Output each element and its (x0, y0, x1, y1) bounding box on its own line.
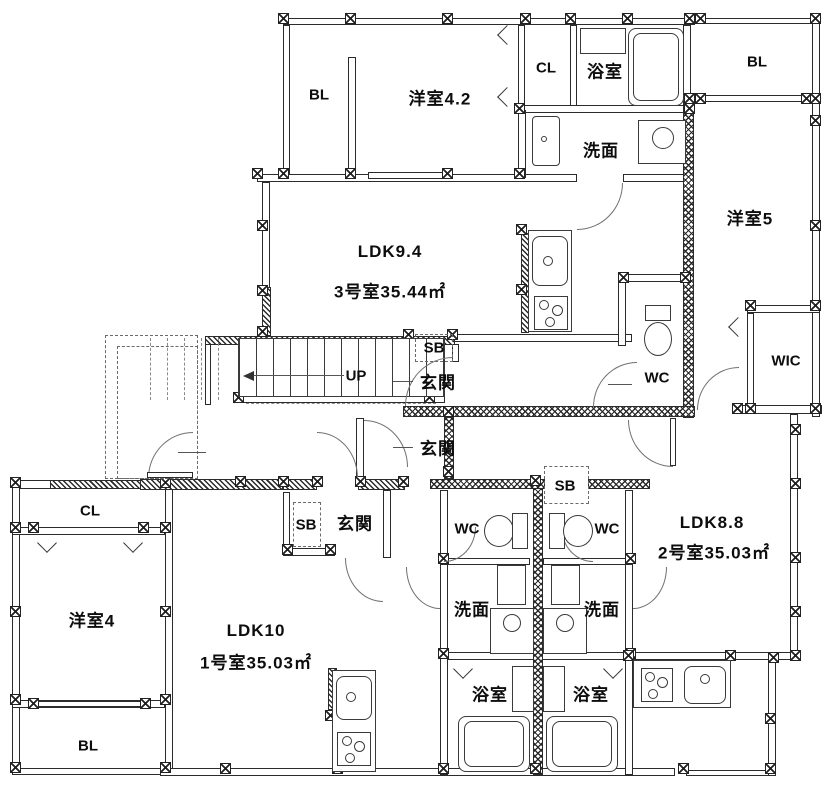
tick (178, 452, 206, 453)
column-marker (810, 13, 821, 24)
column-marker (695, 93, 706, 104)
wall (695, 18, 820, 24)
room-label-cl-west: CL (80, 503, 100, 520)
door-arc (364, 420, 408, 467)
wash-bowl (503, 614, 521, 632)
room-label-wc-unit3: WC (645, 370, 670, 387)
column-marker (10, 694, 21, 705)
column-marker (345, 13, 356, 24)
burner (657, 677, 668, 688)
toilet-bowl (484, 515, 514, 547)
up-arrow-head (243, 371, 254, 381)
room-label-unit1-area: 1号室35.03㎡ (200, 649, 312, 674)
room-label-sb-unit1: SB (296, 517, 317, 534)
window (686, 770, 772, 776)
column-marker (235, 476, 246, 487)
column-marker (257, 285, 268, 296)
up-arrow-line (252, 375, 344, 376)
column-marker (790, 478, 801, 489)
column-marker (516, 284, 527, 295)
bathtub-inner (464, 721, 524, 767)
column-marker (10, 477, 21, 488)
room-label-yoshitsu5: 洋室5 (727, 205, 773, 230)
room-label-ldk10: LDK10 (227, 621, 286, 641)
room-label-bl-northeast: BL (747, 54, 767, 71)
column-marker (565, 13, 576, 24)
column-marker (768, 652, 779, 663)
balcony-rail (30, 701, 151, 707)
column-marker (443, 406, 454, 417)
column-marker (438, 648, 449, 659)
stairs-up-label: UP (346, 368, 367, 385)
wash-bowl (652, 127, 674, 149)
room-label-wc-unit1: WC (455, 521, 480, 538)
column-marker (442, 13, 453, 24)
window (368, 172, 450, 179)
faucet (700, 674, 710, 684)
room-label-wic: WIC (771, 353, 800, 370)
room-label-bl-north: BL (309, 87, 329, 104)
column-marker (438, 763, 449, 774)
column-marker (520, 13, 531, 24)
room-label-senmen-north: 洗面 (583, 137, 619, 162)
door-arc (577, 183, 623, 230)
wash-bowl (556, 614, 574, 632)
column-marker (252, 168, 263, 179)
wall (518, 25, 525, 110)
column-marker (680, 272, 691, 283)
column-marker (810, 403, 821, 414)
folding-door-mark (37, 533, 57, 553)
tick (608, 384, 632, 385)
room-label-yokushitsu-unit2: 浴室 (573, 681, 609, 706)
column-marker (10, 606, 21, 617)
column-marker (695, 13, 706, 24)
toilet-tank (512, 513, 528, 549)
column-marker (345, 168, 356, 179)
column-marker (618, 272, 629, 283)
room-label-unit2-area: 2号室35.03㎡ (658, 539, 770, 564)
folding-door-mark (497, 25, 517, 45)
column-marker (140, 698, 151, 709)
room-label-senmen-unit2: 洗面 (584, 596, 620, 621)
column-marker (28, 698, 39, 709)
room-label-bl-southwest: BL (78, 738, 98, 755)
column-marker (325, 544, 336, 555)
kitchen-sink (684, 666, 726, 704)
toilet-bowl (563, 515, 593, 547)
column-marker (790, 606, 801, 617)
column-marker (625, 553, 636, 564)
party-wall (430, 479, 545, 489)
wall (618, 282, 626, 346)
room-label-yokushitsu-unit1: 浴室 (472, 681, 508, 706)
burner (552, 305, 563, 316)
column-marker (516, 224, 527, 235)
column-marker (530, 475, 541, 486)
door-arc (628, 420, 673, 467)
room-label-unit3-area: 3号室35.44㎡ (334, 278, 446, 303)
folding-door-mark (603, 659, 623, 679)
wall (570, 25, 577, 110)
column-marker (257, 220, 268, 231)
room-label-ldk88: LDK8.8 (680, 513, 745, 533)
bath-counter (543, 666, 565, 712)
column-marker (790, 424, 801, 435)
column-marker (282, 544, 293, 555)
column-marker (678, 763, 689, 774)
wall (452, 334, 632, 342)
window-partition (348, 57, 356, 175)
column-marker (160, 694, 171, 705)
column-marker (10, 762, 21, 773)
door-leaf (147, 472, 193, 478)
burner (354, 741, 365, 752)
room-label-genkan-unit3: 玄関 (420, 369, 456, 394)
floor-plan-canvas: BL 洋室4.2 CL 浴室 BL 洗面 洋室5 LDK9.4 3号室35.44… (0, 0, 837, 788)
column-marker (160, 606, 171, 617)
column-marker (810, 220, 821, 231)
column-marker (28, 522, 39, 533)
door-arc (697, 367, 739, 410)
column-marker (684, 13, 695, 24)
column-marker (10, 522, 21, 533)
bath-counter (512, 666, 534, 712)
wall (12, 768, 168, 775)
column-marker (622, 13, 633, 24)
column-marker (745, 300, 756, 311)
burner (342, 736, 352, 746)
washer-pan (497, 565, 526, 605)
column-marker (278, 13, 289, 24)
column-marker (530, 763, 541, 774)
faucet (346, 692, 356, 702)
faucet (541, 136, 547, 142)
bath-counter (580, 28, 626, 54)
column-marker (810, 115, 821, 126)
column-marker (257, 326, 268, 337)
wall (283, 492, 290, 548)
column-marker (138, 522, 149, 533)
room-label-sb-unit2: SB (555, 478, 576, 495)
burner (545, 317, 555, 327)
column-marker (810, 300, 821, 311)
column-marker (745, 403, 756, 414)
door-arc (633, 567, 667, 609)
wall (283, 25, 290, 178)
folding-door-mark (123, 533, 143, 553)
burner (645, 672, 655, 682)
room-label-genkan-unit2: 玄関 (420, 435, 456, 460)
stairs-dashed-tread (201, 338, 202, 400)
room-label-yoshitsu4: 洋室4 (69, 607, 115, 632)
wall (262, 182, 270, 290)
door-arc (317, 432, 358, 478)
room-label-cl-north: CL (536, 60, 556, 77)
bathtub-inner (633, 33, 679, 101)
wall (790, 414, 798, 660)
room-label-genkan-unit1: 玄関 (337, 510, 373, 535)
tick (393, 447, 413, 448)
room-label-yoshitsu42: 洋室4.2 (409, 85, 472, 110)
column-marker (278, 476, 289, 487)
toilet-bowl (644, 322, 672, 356)
column-marker (514, 168, 525, 179)
column-marker (765, 713, 776, 724)
room-label-senmen-unit1: 洗面 (454, 596, 490, 621)
room-label-yokushitsu-north: 浴室 (587, 58, 623, 83)
toilet-tank (645, 305, 671, 321)
wall (625, 490, 633, 775)
door-arc (345, 558, 383, 602)
column-marker (443, 466, 454, 477)
wall (452, 344, 459, 362)
wall (812, 18, 820, 417)
folding-door-mark (453, 659, 473, 679)
column-marker (765, 763, 776, 774)
column-marker (398, 476, 409, 487)
wall (518, 105, 690, 113)
column-marker (810, 93, 821, 104)
party-wall (588, 479, 650, 489)
wall (623, 174, 690, 182)
burner (648, 689, 658, 699)
column-marker (514, 103, 525, 114)
room-label-ldk94: LDK9.4 (358, 242, 423, 262)
folding-door-mark (728, 317, 748, 337)
column-marker (220, 763, 231, 774)
column-marker (790, 650, 801, 661)
column-marker (160, 762, 171, 773)
washer-pan (551, 565, 580, 605)
bathtub-inner (552, 721, 612, 767)
column-marker (442, 168, 453, 179)
column-marker (684, 103, 695, 114)
balcony-rail (695, 95, 815, 102)
column-marker (790, 552, 801, 563)
wall (205, 337, 211, 405)
column-marker (278, 168, 289, 179)
column-marker (160, 522, 171, 533)
tick (393, 381, 413, 382)
burner (345, 753, 355, 763)
faucet (543, 256, 553, 266)
room-label-sb-unit3: SB (424, 340, 445, 357)
wall (383, 490, 391, 558)
door-arc (406, 567, 440, 609)
party-wall (533, 483, 543, 775)
burner (539, 300, 549, 310)
stairs-dashed-tread (218, 338, 219, 400)
room-label-wc-unit2: WC (595, 521, 620, 538)
